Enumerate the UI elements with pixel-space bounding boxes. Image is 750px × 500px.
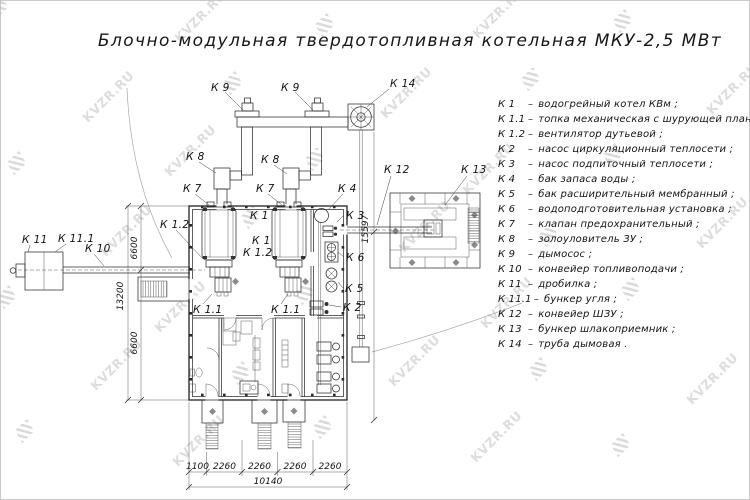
legend-item: К 1–водогрейный котел КВм ; (498, 99, 750, 114)
water-storage-tank (315, 209, 329, 223)
legend-item: К 2–насос циркуляционный теплосети ; (498, 144, 750, 159)
legend-desc: бункер шлакоприемник ; (538, 324, 675, 335)
dim-bottom-2260: 2260 (319, 462, 342, 472)
legend-item: К 13–бункер шлакоприемник ; (498, 324, 750, 339)
hatch-lines (206, 425, 218, 448)
label-k11: К 11 (22, 234, 48, 246)
label-k1-a: К 1 (250, 210, 269, 222)
legend-key: К 1.2 (498, 129, 526, 140)
legend-desc: бак расширительный мембранный ; (538, 189, 734, 200)
legend-dash: – (528, 144, 533, 155)
label-k1-2-b: К 1.2 (243, 247, 273, 259)
legend-key: К 8 (498, 234, 526, 245)
legend-desc: конвейер топливоподачи ; (538, 264, 684, 275)
legend-item: К 3–насос подпиточный теплосети ; (498, 159, 750, 174)
legend-item: К 6–водоподготовительная установка ; (498, 204, 750, 219)
fuel-supply-line (10, 252, 205, 290)
label-k1-1-right: К 1.1 (271, 304, 301, 316)
legend-key: К 2 (498, 144, 526, 155)
legend-desc: насос циркуляционный теплосети ; (538, 144, 733, 155)
legend-item: К 9–дымосос ; (498, 249, 750, 264)
dim-left-6600-bottom: 6600 (130, 331, 140, 354)
label-k11-1: К 11.1 (58, 233, 95, 245)
legend-desc: труба дымовая . (538, 339, 627, 350)
label-k13: К 13 (461, 164, 487, 176)
dim-right-15597: 15597 (361, 214, 371, 243)
legend-key: К 13 (498, 324, 526, 335)
legend-desc: водоподготовительная установка ; (538, 204, 731, 215)
boiler-unit-1 (202, 202, 239, 296)
legend-key: К 5 (498, 189, 526, 200)
label-k12: К 12 (384, 164, 410, 176)
hatch-lines (288, 424, 301, 447)
legend-item: К 5–бак расширительный мембранный ; (498, 189, 750, 204)
label-k14: К 14 (390, 78, 416, 90)
legend-key: К 10 (498, 264, 526, 275)
dim-bottom-2260: 2260 (284, 462, 307, 472)
legend-desc: вентилятор дутьевой ; (538, 129, 663, 140)
label-k7-right: К 7 (256, 183, 275, 195)
legend-desc: бункер угля ; (544, 294, 617, 305)
legend-desc: дымосос ; (538, 249, 592, 260)
legend-item: К 12–конвейер ШЗУ ; (498, 309, 750, 324)
legend-desc: золоуловитель ЗУ ; (538, 234, 643, 245)
label-k1-b: К 1 (252, 235, 271, 247)
legend-dash: – (528, 249, 533, 260)
legend-key: К 9 (498, 249, 526, 260)
hatch-lines (258, 425, 271, 448)
ash-collector-right (283, 168, 299, 189)
legend-desc: бак запаса воды ; (538, 174, 635, 185)
legend-dash: – (528, 234, 533, 245)
legend-dash: – (528, 189, 533, 200)
dim-bottom-1100: 1100 (186, 462, 209, 472)
page-title: Блочно-модульная твердотопливная котельн… (80, 31, 740, 51)
legend-desc: конвейер ШЗУ ; (538, 309, 623, 320)
conveyor-pit (352, 347, 369, 362)
legend-item: К 7–клапан предохранительный ; (498, 219, 750, 234)
legend-dash: – (528, 324, 533, 335)
legend-dash: – (528, 309, 533, 320)
legend-dash: – (528, 264, 533, 275)
legend-item: К 8–золоуловитель ЗУ ; (498, 234, 750, 249)
legend-key: К 12 (498, 309, 526, 320)
dim-left-6600-top: 6600 (130, 236, 140, 259)
label-k7-left: К 7 (183, 183, 202, 195)
label-k8-left: К 8 (186, 151, 205, 163)
legend-dash: – (528, 99, 533, 110)
legend-item: К 4–бак запаса воды ; (498, 174, 750, 189)
legend-desc: дробилка ; (538, 279, 597, 290)
legend-item: К 11.1–бункер угля ; (498, 294, 750, 309)
entrance-stairs (202, 400, 305, 449)
legend-dash: – (528, 159, 533, 170)
leader-lines (28, 89, 467, 307)
legend-item: К 1.1–топка механическая с шурующей план… (498, 114, 750, 129)
auxiliary-equipment (310, 209, 340, 394)
boiler-unit-2 (272, 202, 309, 296)
dim-bottom-10140: 10140 (254, 477, 283, 487)
legend-dash: – (528, 129, 533, 140)
legend-desc: насос подпиточный теплосети ; (538, 159, 713, 170)
drawing-sheet: KVZR.RUKVZR.RUKVZR.RUKVZR.RUKVZR.RUKVZR.… (0, 0, 750, 500)
label-k9-left: К 9 (211, 82, 230, 94)
legend-desc: топка механическая с шурующей планкой ; (538, 114, 750, 125)
legend-dash: – (534, 294, 539, 305)
legend-dash: – (528, 339, 533, 350)
legend-dash: – (528, 114, 533, 125)
legend-key: К 6 (498, 204, 526, 215)
chimney (348, 104, 374, 130)
legend-dash: – (528, 204, 533, 215)
label-k6: К 6 (346, 252, 365, 264)
hatch-lines (143, 281, 166, 297)
legend-item: К 10–конвейер топливоподачи ; (498, 264, 750, 279)
legend-dash: – (528, 219, 533, 230)
legend-item: К 1.2–вентилятор дутьевой ; (498, 129, 750, 144)
legend-key: К 14 (498, 339, 526, 350)
fuel-conveyor-entry (138, 277, 189, 301)
legend-key: К 11.1 (498, 294, 532, 305)
legend-key: К 11 (498, 279, 526, 290)
equipment-legend: К 1–водогрейный котел КВм ; К 1.1–топка … (498, 99, 750, 354)
legend-key: К 3 (498, 159, 526, 170)
legend-desc: клапан предохранительный ; (538, 219, 699, 230)
legend-key: К 7 (498, 219, 526, 230)
legend-key: К 1.1 (498, 114, 526, 125)
legend-desc: водогрейный котел КВм ; (538, 99, 678, 110)
legend-dash: – (528, 174, 533, 185)
legend-key: К 4 (498, 174, 526, 185)
legend-item: К 11–дробилка ; (498, 279, 750, 294)
legend-key: К 1 (498, 99, 526, 110)
dim-bottom-2260: 2260 (248, 462, 271, 472)
label-k5: К 5 (345, 283, 364, 295)
label-k1-2-a: К 1.2 (160, 219, 190, 231)
swing-arc-left (127, 88, 172, 258)
legend-item: К 14–труба дымовая . (498, 339, 750, 354)
legend-dash: – (528, 279, 533, 290)
label-k9-right: К 9 (281, 82, 300, 94)
label-k8-right: К 8 (261, 154, 280, 166)
ash-collector-left (214, 168, 230, 189)
label-k1-1-left: К 1.1 (193, 304, 223, 316)
label-k2: К 2 (343, 302, 362, 314)
dim-left-13200: 13200 (116, 281, 126, 310)
label-k4: К 4 (338, 183, 357, 195)
dim-bottom-2260: 2260 (213, 462, 236, 472)
